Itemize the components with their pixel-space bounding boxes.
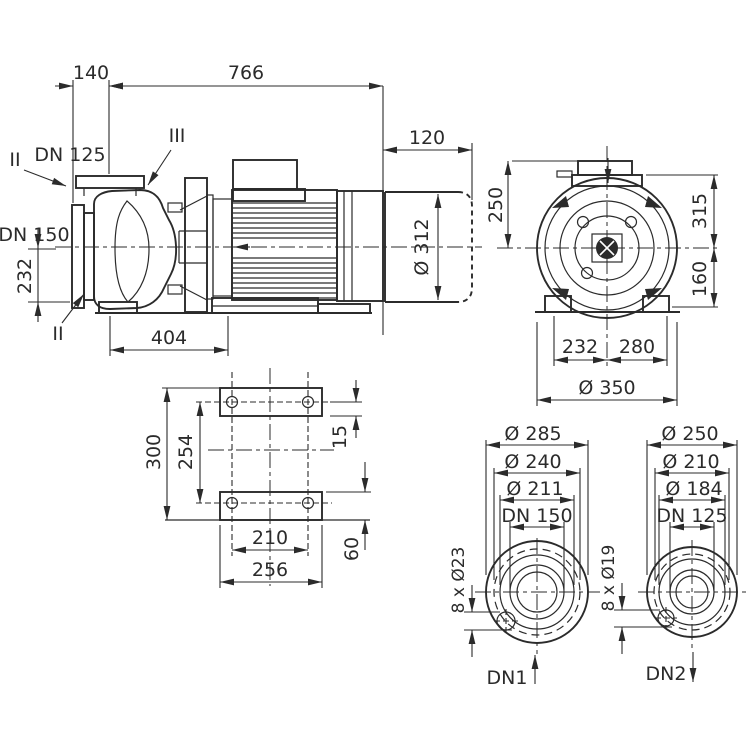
dim-suction-axis-height: 232 <box>14 258 36 294</box>
foundation-view <box>162 368 370 586</box>
drawing-svg: 140 766 120 Ø 312 404 232 DN 125 DN 150 … <box>0 0 750 750</box>
dim-total-length: 766 <box>228 62 264 84</box>
dim-axis-to-top: 315 <box>689 193 711 229</box>
side-view-dimensions: 140 766 120 Ø 312 404 232 DN 125 DN 150 … <box>0 62 472 356</box>
label-port-dn1: DN1 <box>487 667 528 689</box>
dim-flange2-bolt-holes: 8 x Ø19 <box>599 545 619 612</box>
dim-flange2-outer-diameter: Ø 250 <box>661 423 718 445</box>
dim-fan-cover-diameter: Ø 312 <box>411 218 433 275</box>
dim-base-height-total: 300 <box>143 434 165 470</box>
dim-fan-cover-length: 120 <box>409 127 445 149</box>
dim-foot-right-offset: 280 <box>619 336 655 358</box>
flange-dn1-dimensions: Ø 285 Ø 240 Ø 211 DN 150 8 x Ø23 DN1 <box>449 423 588 689</box>
dim-hole-edge-offset: 15 <box>329 425 351 449</box>
dim-flange2-bolt-circle: Ø 210 <box>662 451 719 473</box>
dim-flange1-face-diameter: Ø 211 <box>506 478 563 500</box>
end-view <box>497 146 720 368</box>
label-suction-dn150: DN 150 <box>0 224 70 246</box>
dim-axis-to-base: 160 <box>689 261 711 297</box>
dim-pump-length: 404 <box>151 327 187 349</box>
pump-dimension-drawing: 140 766 120 Ø 312 404 232 DN 125 DN 150 … <box>0 0 750 750</box>
dim-bolt-hole-spacing-horizontal: 210 <box>252 527 288 549</box>
dim-flange1-bolt-circle: Ø 240 <box>504 451 561 473</box>
dim-flange1-nominal-bore: DN 150 <box>501 505 572 527</box>
dim-flange1-outer-diameter: Ø 285 <box>504 423 561 445</box>
label-section-ii-top: II <box>9 149 20 171</box>
dim-flange2-face-diameter: Ø 184 <box>665 478 722 500</box>
dim-base-bottom-height: 60 <box>341 537 363 561</box>
dim-flange2-nominal-bore: DN 125 <box>656 505 727 527</box>
flange-dn2-view <box>638 540 746 652</box>
dim-suction-face-to-axis: 140 <box>73 62 109 84</box>
label-section-iii: III <box>169 125 186 147</box>
dim-base-width-total: 256 <box>252 559 288 581</box>
dim-foot-left-offset: 232 <box>562 336 598 358</box>
dim-box-top-to-axis: 250 <box>485 187 507 223</box>
end-view-dimensions: 250 315 160 232 280 Ø 350 <box>485 161 718 406</box>
foundation-view-dimensions: 300 254 15 60 210 256 <box>143 380 371 588</box>
dim-motor-diameter: Ø 350 <box>578 377 635 399</box>
label-port-dn2: DN2 <box>646 663 687 685</box>
label-section-ii-bottom: II <box>52 323 63 345</box>
dim-flange1-bolt-holes: 8 x Ø23 <box>449 547 469 614</box>
label-discharge-dn125: DN 125 <box>34 144 105 166</box>
dim-bolt-hole-spacing-vertical: 254 <box>175 434 197 470</box>
